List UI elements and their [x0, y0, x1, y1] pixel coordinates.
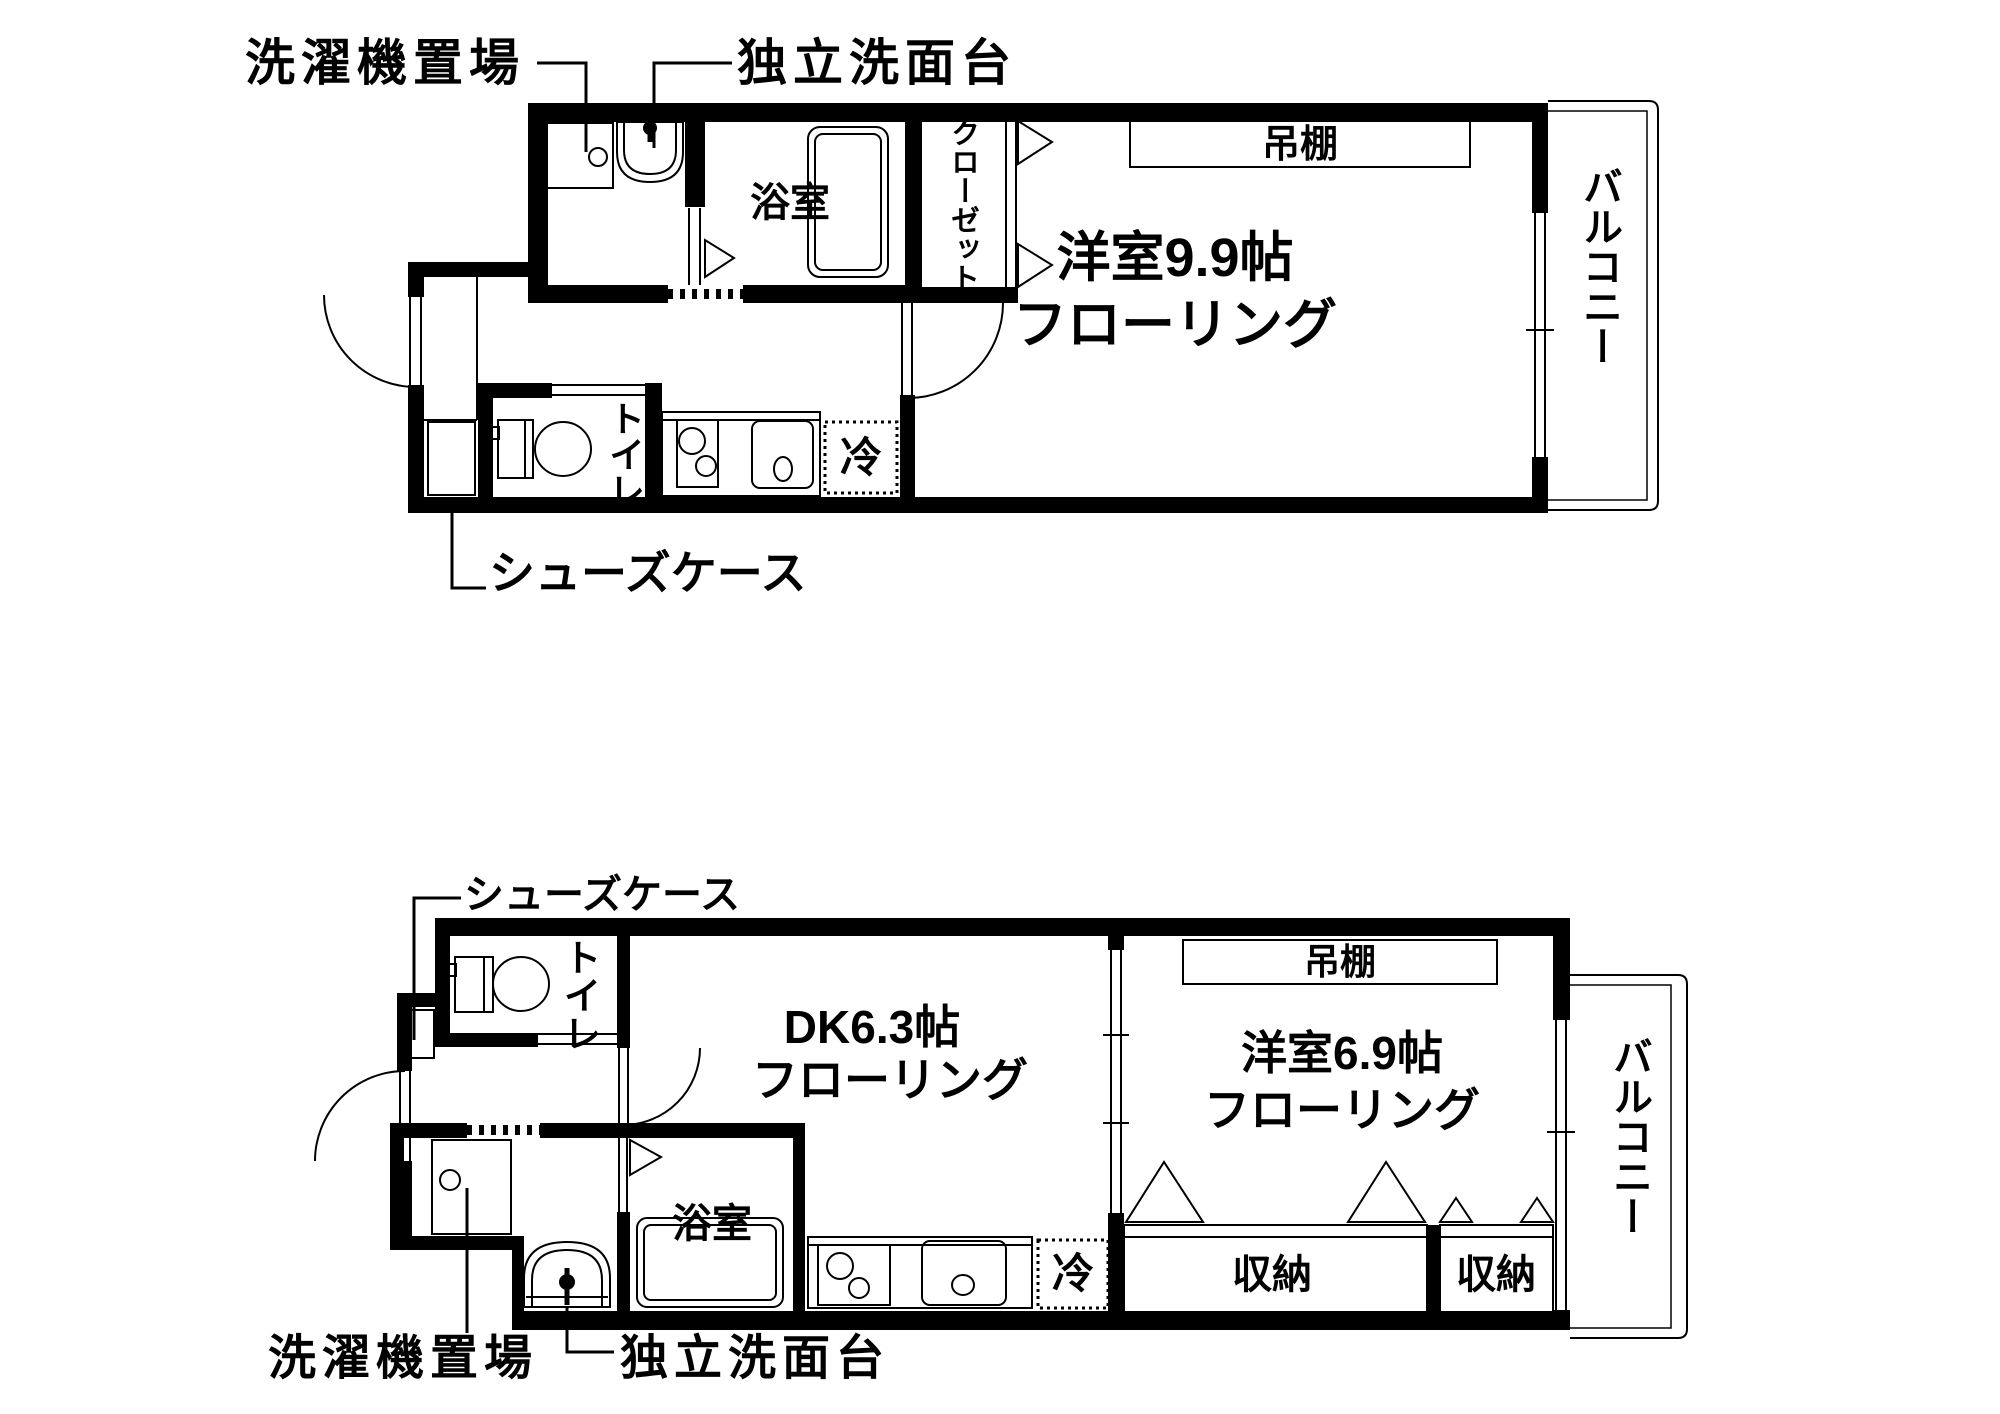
storage-door-triangle-icon	[1440, 1198, 1472, 1222]
lower-storage-label: 収納	[1232, 1255, 1312, 1295]
bath-door-triangle-icon	[705, 240, 734, 277]
toilet-tank-icon	[498, 420, 533, 478]
toilet-tank-icon	[455, 957, 493, 1012]
upper-room-flooring-label: フローリング	[1013, 298, 1337, 352]
upper-toilet-label: トイレ	[606, 400, 642, 508]
lower-shoecase-label: シューズケース	[464, 875, 740, 915]
storage-door-triangle-icon	[1126, 1162, 1203, 1222]
upper-shelf-label: 吊棚	[1262, 126, 1338, 164]
stove-burner-icon	[849, 1278, 869, 1298]
entry-door-arc	[324, 295, 416, 387]
washing-machine-icon	[547, 123, 613, 188]
lower-vanity-label: 独立洗面台	[620, 1335, 890, 1383]
sink-drain-icon	[774, 457, 792, 481]
closet-door-triangle-icon	[1018, 121, 1052, 164]
lower-door-triangles	[630, 1140, 1553, 1222]
lower-room-flooring-label: フローリング	[1204, 1087, 1480, 1133]
floor-plan-drawing	[0, 0, 2000, 1414]
upper-vanity-label: 独立洗面台	[737, 38, 1017, 88]
lower-fridge-label: 冷	[1052, 1253, 1094, 1295]
floor-plan-page: 洗濯機置場 独立洗面台 浴室 クローゼット 吊棚 洋室9.9帖 フローリング バ…	[0, 0, 2000, 1414]
toilet-bowl-icon	[493, 957, 549, 1011]
dk-door-arc	[623, 1048, 700, 1125]
storage-door-triangle-icon	[1348, 1162, 1425, 1222]
upper-room-size-label: 洋室9.9帖	[1056, 231, 1293, 285]
toilet-bowl-icon	[535, 422, 591, 476]
stove-burner-icon	[679, 428, 705, 454]
bath-door-triangle-icon	[630, 1140, 661, 1175]
kitchen-counter-icon	[808, 1237, 1032, 1308]
stove-burner-icon	[696, 456, 716, 476]
upper-fridge-label: 冷	[840, 437, 882, 479]
room-door-arc	[908, 303, 1003, 398]
lower-balcony-label: バルコニー	[1609, 1036, 1649, 1236]
upper-plan	[324, 63, 1658, 588]
lower-dk-size-label: DK6.3帖	[784, 1004, 960, 1050]
upper-bathroom-label: 浴室	[750, 183, 830, 223]
shoe-case-icon	[428, 422, 475, 495]
washing-machine-drain-icon	[440, 1170, 460, 1190]
washbasin-tap-icon	[560, 1275, 574, 1289]
sink-icon	[752, 421, 813, 488]
closet-door-triangle-icon	[1018, 244, 1052, 287]
kitchen-counter-icon	[662, 412, 820, 496]
lower-shelf-label: 吊棚	[1304, 944, 1376, 980]
sink-drain-icon	[952, 1275, 974, 1295]
lower-toilet-label: トイレ	[559, 938, 597, 1052]
washing-machine-drain-icon	[589, 148, 607, 166]
lower-storage-label-2: 収納	[1456, 1255, 1536, 1295]
upper-closet-label: クローゼット	[948, 118, 977, 292]
storage-door-triangle-icon	[1521, 1198, 1553, 1222]
lower-room-size-label: 洋室6.9帖	[1241, 1030, 1443, 1076]
stove-burner-icon	[827, 1253, 853, 1279]
lower-bathroom-label: 浴室	[672, 1204, 752, 1244]
upper-washer-label: 洗濯機置場	[245, 38, 525, 88]
lower-dk-flooring-label: フローリング	[752, 1057, 1028, 1103]
upper-shoecase-label: シューズケース	[489, 550, 806, 596]
lower-washer-label: 洗濯機置場	[268, 1335, 538, 1383]
upper-balcony-label: バルコニー	[1579, 166, 1619, 366]
